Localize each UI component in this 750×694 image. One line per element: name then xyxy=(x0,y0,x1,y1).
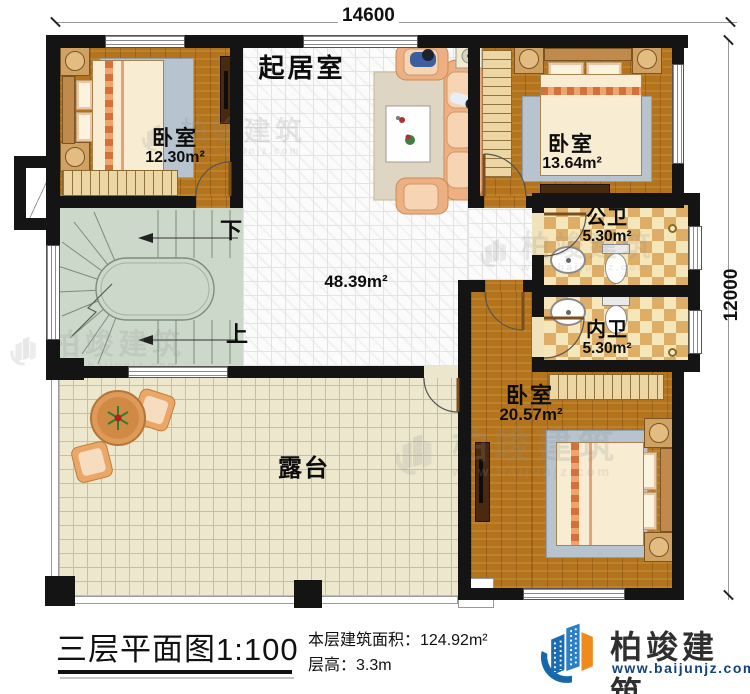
bed xyxy=(556,442,644,546)
wall xyxy=(532,255,544,317)
stairs-up-label: 上 xyxy=(222,323,252,346)
door-threshold xyxy=(485,280,523,292)
bed-pillow xyxy=(76,80,93,110)
ensuite-bath-area: 5.30m² xyxy=(572,341,642,357)
wall xyxy=(46,196,196,208)
window xyxy=(128,366,228,378)
floor-plan-canvas: 14600 12000 xyxy=(0,0,750,694)
wall xyxy=(458,588,523,600)
column xyxy=(46,358,84,380)
public-bath-lamp xyxy=(668,224,677,233)
blanket-stripe xyxy=(589,443,592,545)
blanket-stripe xyxy=(541,87,641,95)
ensuite-bath-lamp xyxy=(668,348,677,357)
window xyxy=(105,35,185,48)
bedroom1-wardrobe xyxy=(62,170,178,196)
dimension-right-label: 12000 xyxy=(721,256,743,334)
bedroom1-area: 12.30m² xyxy=(122,150,228,167)
bed-headboard xyxy=(544,48,632,61)
living-room-label: 起居室 xyxy=(252,55,352,82)
blanket-stripe xyxy=(571,443,579,545)
terrace-parapet-left xyxy=(51,378,59,604)
bed-pillow xyxy=(76,112,93,142)
bedroom2-area: 13.64m² xyxy=(527,156,617,173)
living-room-area: 48.39m² xyxy=(316,273,396,291)
wall xyxy=(242,366,424,378)
public-bath-sink xyxy=(550,246,586,274)
door-threshold xyxy=(532,213,544,255)
column xyxy=(45,576,75,606)
building-area-text: 本层建筑面积：124.92m² xyxy=(308,626,488,650)
watermark-logo-icon xyxy=(8,333,43,368)
bedroom1-label: 卧室 xyxy=(132,128,218,150)
wall xyxy=(468,196,484,208)
public-bath-label: 公卫 xyxy=(578,208,636,229)
blanket-stripe xyxy=(105,61,113,173)
door-threshold xyxy=(196,196,230,208)
title-underline-shadow xyxy=(60,677,294,679)
bed-headboard xyxy=(62,76,75,144)
dimension-top-label: 14600 xyxy=(338,5,399,27)
bedroom3-label: 卧室 xyxy=(498,384,562,407)
window xyxy=(303,35,418,48)
window xyxy=(688,310,702,354)
door-threshold xyxy=(532,317,544,357)
window xyxy=(672,64,684,164)
corridor-floor xyxy=(468,208,532,280)
bedroom3-wardrobe xyxy=(548,374,664,400)
window xyxy=(46,245,60,340)
floor-height-text: 层高：3.3m xyxy=(308,651,392,675)
column xyxy=(294,580,322,608)
nightstand xyxy=(644,418,674,448)
public-bath-area: 5.30m² xyxy=(572,229,642,245)
terrace-table-set xyxy=(66,388,182,500)
terrace-parapet-bottom xyxy=(51,596,458,604)
door-threshold xyxy=(484,196,526,208)
plan-title: 三层平面图1:100 xyxy=(56,624,299,669)
wall xyxy=(532,360,700,372)
nightstand xyxy=(514,44,544,74)
bedroom3-area: 20.57m² xyxy=(486,406,576,424)
title-underline xyxy=(58,670,292,674)
company-logo-icon xyxy=(536,618,608,686)
public-bath-toilet xyxy=(602,244,630,284)
terrace-label: 露台 xyxy=(272,456,336,481)
wall xyxy=(625,588,684,600)
bedroom2-label: 卧室 xyxy=(536,134,606,156)
bedroom3-tv-cabinet xyxy=(475,442,490,522)
tv-screen xyxy=(224,71,228,109)
bedroom3-floor xyxy=(471,292,532,588)
wall xyxy=(672,372,684,600)
window xyxy=(523,588,625,600)
company-logo-url: www.baijunjz.com xyxy=(612,660,750,676)
nightstand xyxy=(60,142,90,172)
tv-screen xyxy=(479,459,483,503)
ensuite-bath-label: 内卫 xyxy=(578,320,636,341)
wall xyxy=(458,280,471,600)
stairs-down-label: 下 xyxy=(216,219,246,242)
door-threshold xyxy=(424,366,458,378)
toilet-bowl xyxy=(605,253,627,284)
wall xyxy=(544,285,700,297)
wall xyxy=(471,280,485,292)
wall xyxy=(468,35,480,208)
wall xyxy=(230,35,243,208)
wall xyxy=(14,218,56,230)
wall xyxy=(532,193,544,213)
company-logo-text: 柏竣建筑 xyxy=(610,622,750,694)
nightstand xyxy=(632,44,662,74)
nightstand xyxy=(644,532,674,562)
window xyxy=(688,226,702,270)
nightstand xyxy=(60,46,90,76)
wall xyxy=(532,193,700,205)
